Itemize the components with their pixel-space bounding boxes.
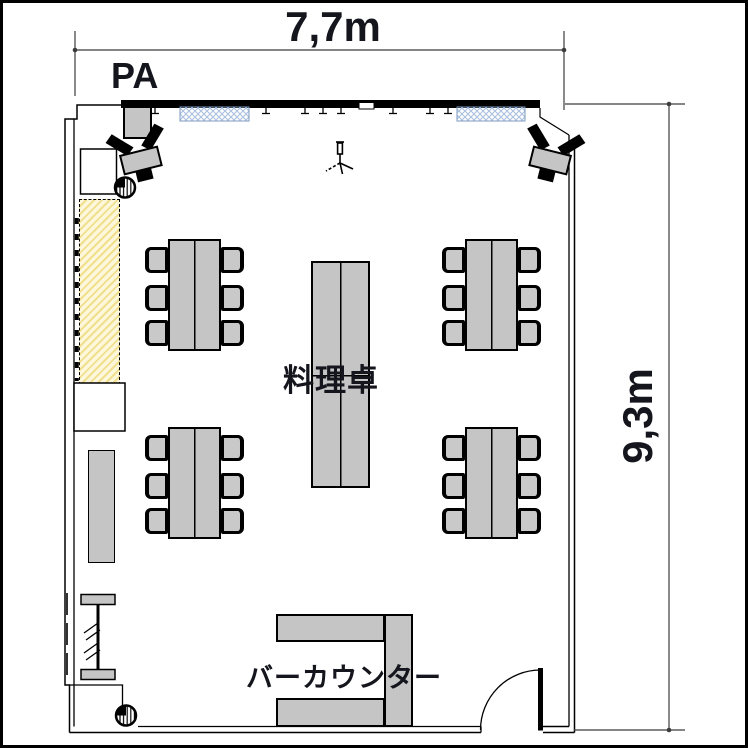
chair [145,320,168,346]
chair [221,285,244,311]
chair [518,247,541,273]
dining-table [465,239,518,351]
chair [145,473,168,499]
chair [442,473,465,499]
chair [518,435,541,461]
dining-table [168,427,221,539]
dining-set-top-left [145,239,244,351]
side-bench [88,450,115,563]
bar-counter-bottom [276,698,385,727]
entrance-door [481,668,541,731]
chair [221,435,244,461]
chair [518,473,541,499]
chair [518,508,541,534]
cooking-table-label: 料理卓 [283,355,379,400]
pa-amp-box [124,107,151,138]
wall-niche-top [81,149,117,194]
chair [442,247,465,273]
top-wall-joint [359,103,374,110]
bottom-wall-right [543,727,575,733]
column-bottom-shade [116,706,126,716]
floor-plan: 7,7m 9,3m PA 料理卓 バーカウンター [0,0,748,748]
bar-counter-top [276,614,385,642]
chair [518,285,541,311]
dining-set-bottom-left [145,427,244,539]
dining-table [168,239,221,351]
bottom-left-step [70,685,123,706]
structural-columns [115,178,136,726]
chair [442,508,465,534]
chair [442,435,465,461]
top-right-corner [540,108,569,135]
bar-counter-label: バーカウンター [246,656,442,695]
dining-set-top-right [442,239,541,351]
wall-niche-mid [74,383,125,431]
chair [221,508,244,534]
chair [145,435,168,461]
chair [145,247,168,273]
chair [518,320,541,346]
chair [221,473,244,499]
speaker-right-icon [516,122,587,188]
window-strip-left [180,107,249,121]
dining-table [465,427,518,539]
window-strip-right [457,107,525,121]
chair [145,285,168,311]
mic-stand-icon [326,142,353,174]
pa-label: PA [111,55,158,97]
chair [221,320,244,346]
chair [442,285,465,311]
chair [442,320,465,346]
partition-ladder [81,595,115,680]
chair [221,247,244,273]
chair [145,508,168,534]
dining-set-bottom-right [442,427,541,539]
height-dimension-label: 9,3m [615,341,661,491]
width-dimension-label: 7,7m [233,3,433,51]
bottom-wall-inner [138,727,481,733]
door-swing-arc [481,670,541,730]
